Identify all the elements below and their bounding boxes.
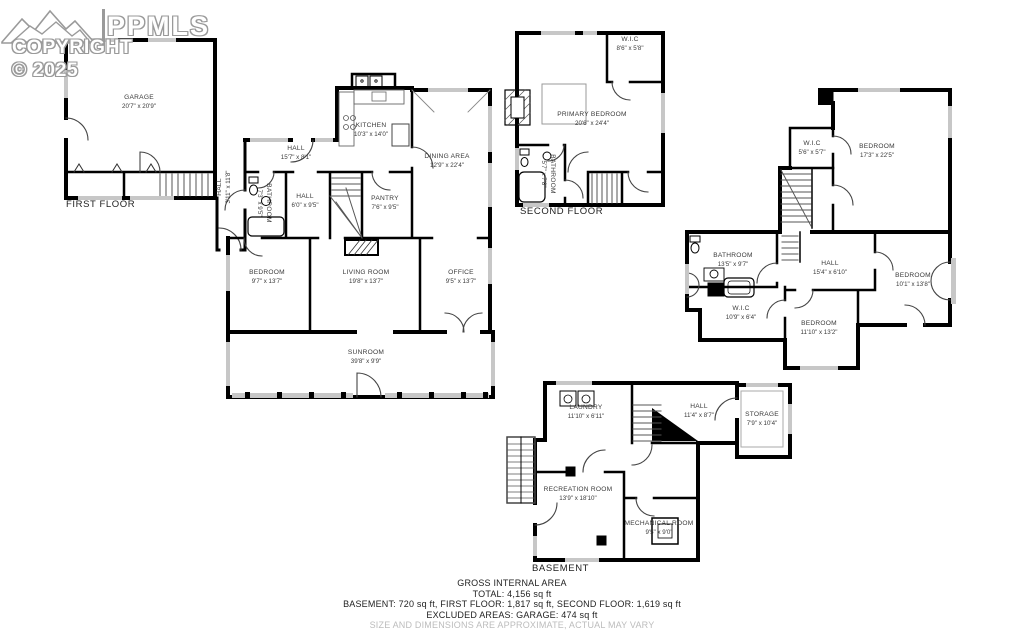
summary-total: TOTAL: 4,156 sq ft xyxy=(0,589,1024,600)
summary-excluded: EXCLUDED AREAS: GARAGE: 474 sq ft xyxy=(0,610,1024,621)
room-label-bedroom-large: BEDROOM 17'3" x 22'5" xyxy=(859,143,895,159)
room-label-wic-long: W.I.C 10'9" x 6'4" xyxy=(726,305,757,321)
logo-copyright: COPYRIGHT © 2025 xyxy=(12,36,132,82)
room-label-office: OFFICE 9'5" x 13'7" xyxy=(446,269,477,285)
first-floor-windows xyxy=(64,38,495,398)
room-label-bedroom-right: BEDROOM 10'1" x 13'8" xyxy=(895,272,931,288)
summary-breakdown: BASEMENT: 720 sq ft, FIRST FLOOR: 1,817 … xyxy=(0,599,1024,610)
room-label-hall-entry: HALL 3'11" x 11'8" xyxy=(216,170,232,203)
room-label-laundry: LAUNDRY 11'10" x 6'11" xyxy=(568,404,604,420)
room-label-pantry: PANTRY 7'6" x 9'5" xyxy=(371,195,399,211)
room-label-bathroom-first: BATHROOM 7'3" x 9'5" xyxy=(256,183,272,223)
summary-disclaimer: SIZE AND DIMENSIONS ARE APPROXIMATE, ACT… xyxy=(0,620,1024,631)
room-label-recreation-room: RECREATION ROOM 13'9" x 18'10" xyxy=(544,486,613,502)
room-label-bedroom-first: BEDROOM 9'7" x 13'7" xyxy=(249,269,285,285)
room-label-kitchen: KITCHEN 10'3" x 14'0" xyxy=(354,122,388,138)
room-label-wic-small: W.I.C 5'6" x 5'7" xyxy=(798,140,825,156)
room-label-sunroom: SUNROOM 39'8" x 9'9" xyxy=(348,349,384,365)
basement-label: BASEMENT xyxy=(532,563,589,574)
room-label-hall-second: HALL 15'4" x 6'10" xyxy=(813,260,847,276)
room-label-primary-bedroom: PRIMARY BEDROOM 20'6" x 24'4" xyxy=(557,111,626,127)
room-label-bedroom-bottom: BEDROOM 11'10" x 13'2" xyxy=(801,320,838,336)
ppmls-logo: PPMLS COPYRIGHT © 2025 xyxy=(0,0,100,53)
room-label-wic-primary: W.I.C 8'6" x 5'8" xyxy=(616,36,643,52)
room-label-living-room: LIVING ROOM 19'8" x 13'7" xyxy=(343,269,390,285)
room-label-bathroom-primary: BATHROOM 5'7" x 7'8" xyxy=(540,154,556,194)
room-label-bathroom-second: BATHROOM 13'5" x 9'7" xyxy=(713,252,753,268)
summary-title: GROSS INTERNAL AREA xyxy=(0,578,1024,589)
second-floor-label: SECOND FLOOR xyxy=(520,206,603,217)
room-label-mechanical-room: MECHANICAL ROOM 9'5" x 9'0" xyxy=(624,520,693,536)
area-summary: GROSS INTERNAL AREA TOTAL: 4,156 sq ft B… xyxy=(0,578,1024,631)
floorplan-canvas: PPMLS COPYRIGHT © 2025 FIRST FLOOR SECON… xyxy=(0,0,1024,640)
room-label-hall-main: HALL 15'7" x 8'1" xyxy=(281,145,312,161)
room-label-hall-small: HALL 6'0" x 9'5" xyxy=(291,193,318,209)
room-label-dining-area: DINING AREA 12'9" x 22'4" xyxy=(424,153,469,169)
room-label-hall-basement: HALL 11'4" x 8'7" xyxy=(684,403,714,419)
room-label-storage: STORAGE 7'9" x 10'4" xyxy=(745,411,779,427)
first-floor-label: FIRST FLOOR xyxy=(66,199,135,210)
room-label-garage: GARAGE 20'7" x 20'9" xyxy=(122,94,156,110)
